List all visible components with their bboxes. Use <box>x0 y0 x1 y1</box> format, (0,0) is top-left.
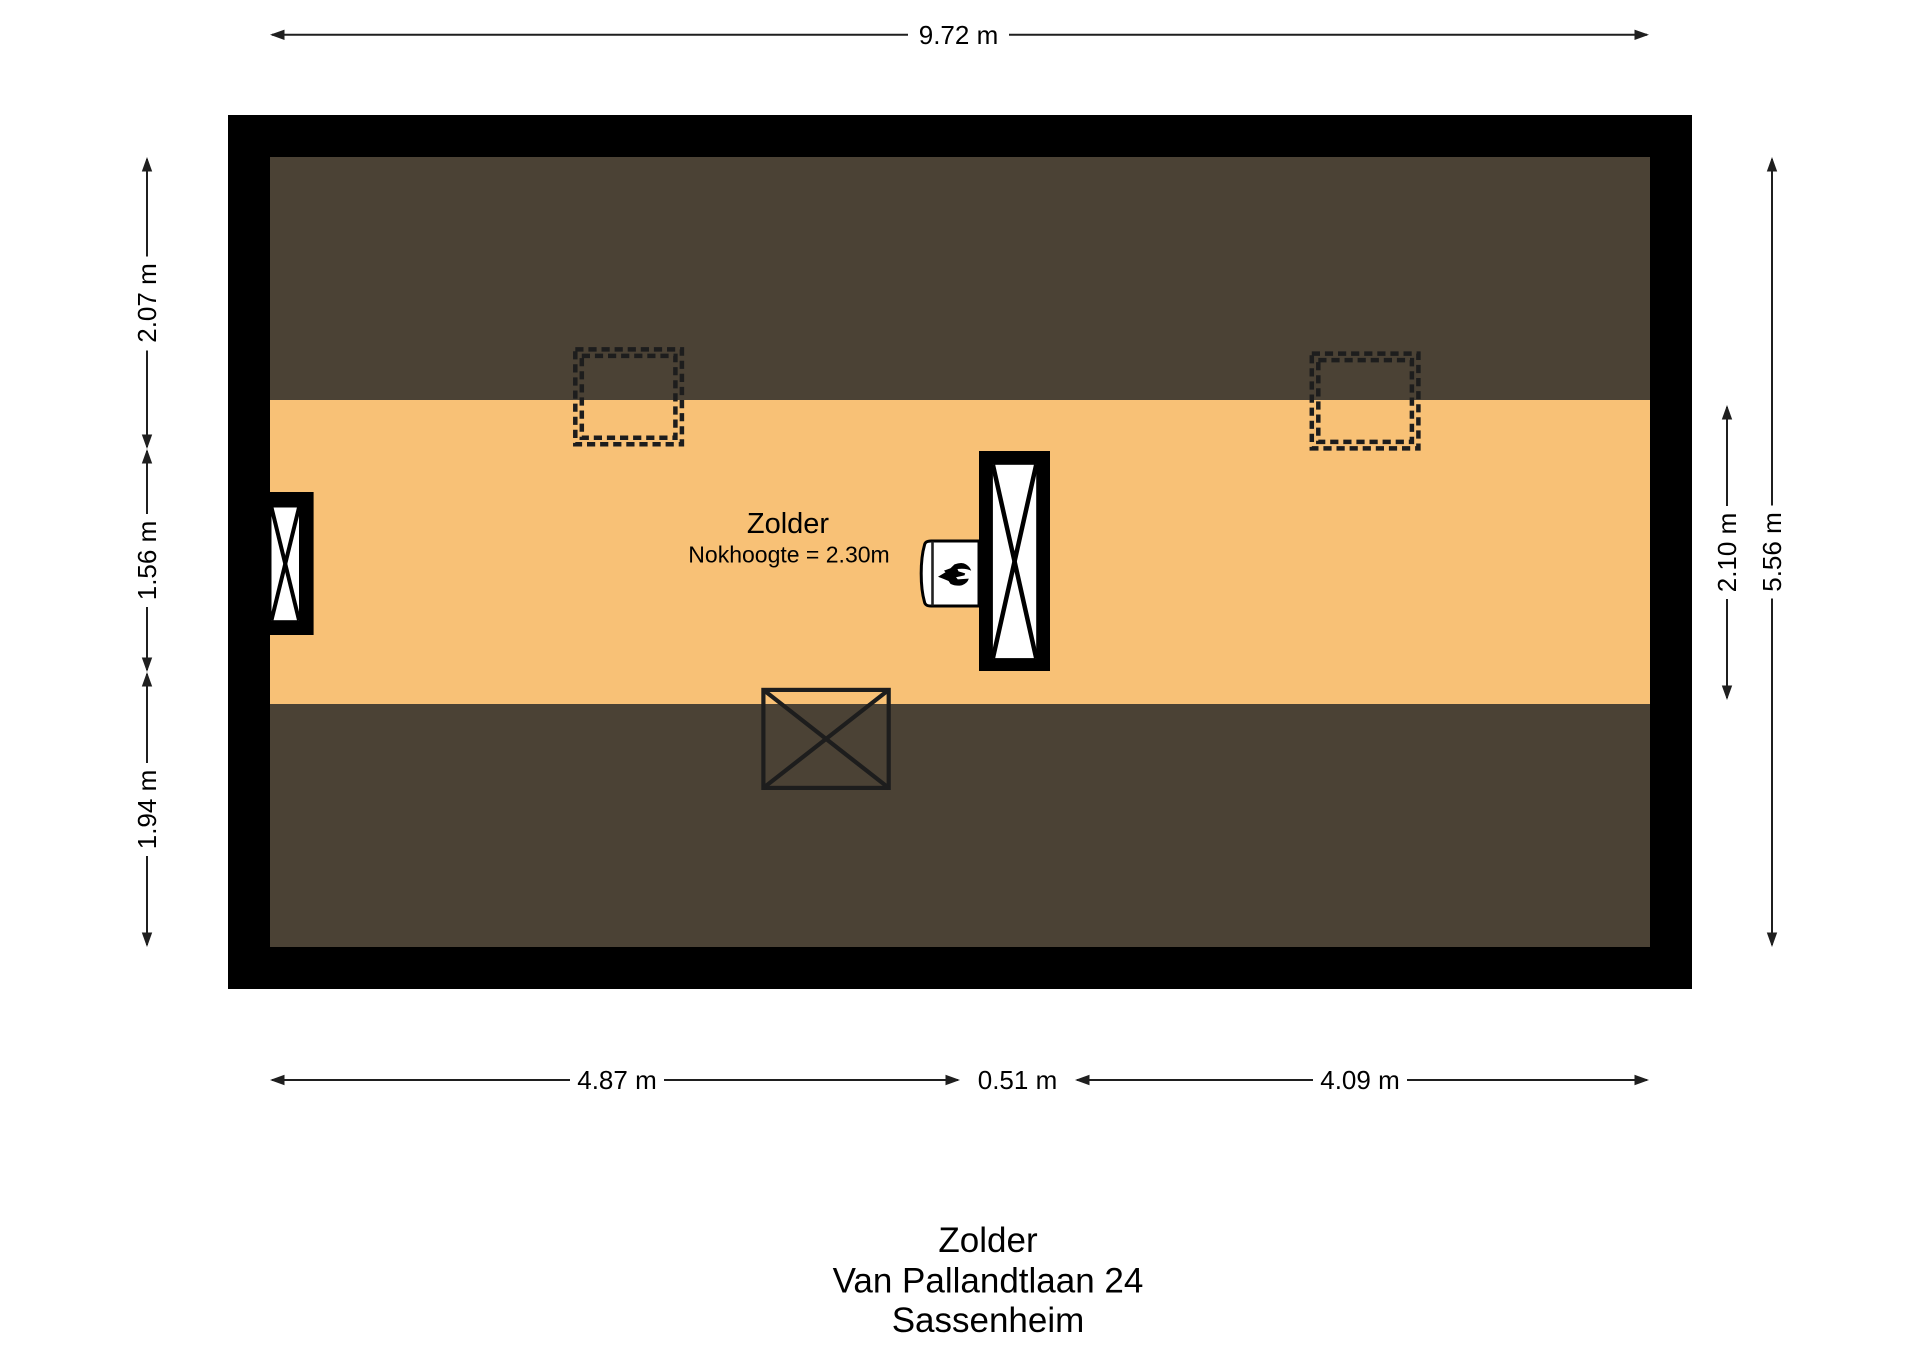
svg-text:9.72 m: 9.72 m <box>919 20 999 50</box>
svg-text:2.10 m: 2.10 m <box>1712 513 1742 593</box>
svg-text:5.56 m: 5.56 m <box>1757 512 1787 592</box>
svg-text:4.09 m: 4.09 m <box>1320 1065 1400 1095</box>
svg-text:Zolder: Zolder <box>938 1221 1038 1260</box>
svg-text:Van Pallandtlaan 24: Van Pallandtlaan 24 <box>833 1262 1144 1301</box>
svg-text:Nokhoogte = 2.30m: Nokhoogte = 2.30m <box>688 542 889 568</box>
svg-text:0.51 m: 0.51 m <box>978 1065 1058 1095</box>
svg-text:Sassenheim: Sassenheim <box>892 1301 1085 1340</box>
svg-text:2.07 m: 2.07 m <box>132 263 162 343</box>
svg-text:Zolder: Zolder <box>747 508 830 540</box>
svg-text:1.56 m: 1.56 m <box>132 521 162 601</box>
svg-text:1.94 m: 1.94 m <box>132 770 162 850</box>
svg-text:4.87 m: 4.87 m <box>577 1065 657 1095</box>
